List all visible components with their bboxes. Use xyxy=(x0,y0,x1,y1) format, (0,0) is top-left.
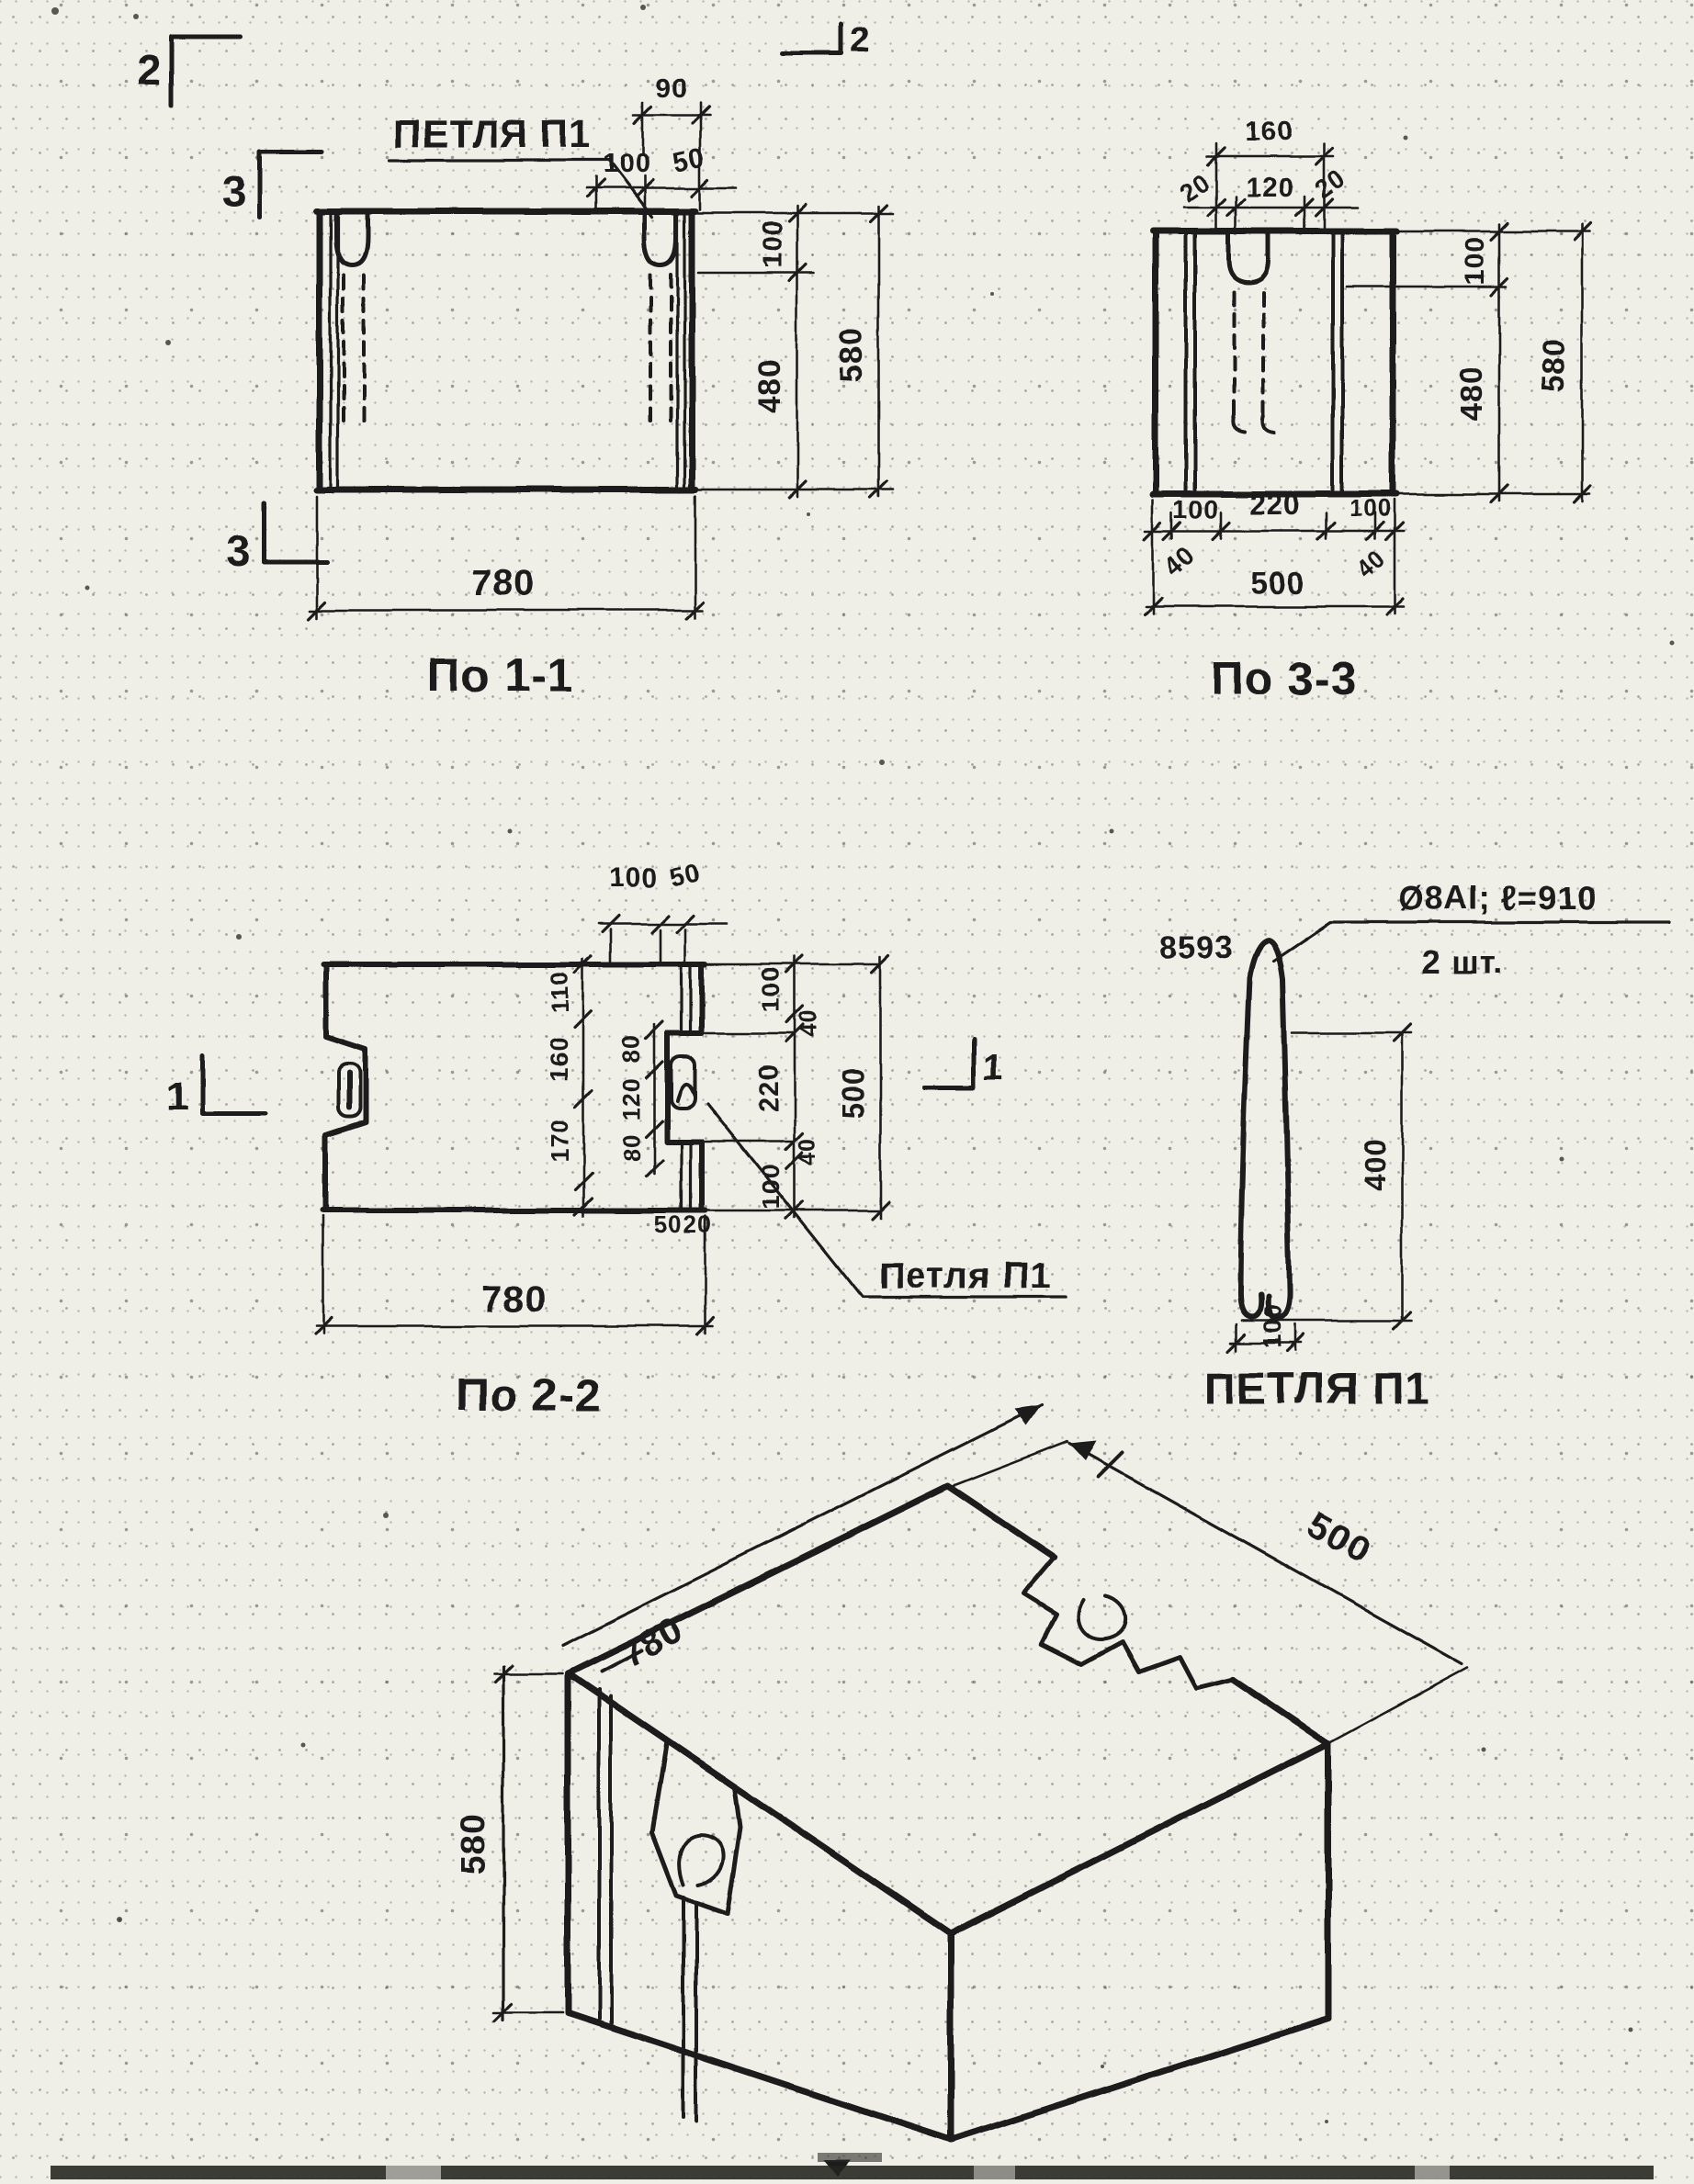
loop-qty-text: 2 шт. xyxy=(1421,943,1504,981)
cut-marker-3-top: 3 xyxy=(221,152,322,217)
section-1-1-outline xyxy=(317,211,695,490)
cut-marker-1-right: 1 xyxy=(923,1040,1004,1088)
dim-120: 120 xyxy=(1245,173,1293,203)
loop-label-2-2: Петля П1 xyxy=(878,1255,1051,1296)
section-1-1-view: 2 2 3 3 ПЕТЛЯ П1 xyxy=(137,21,893,701)
dim-loop-100: 100 xyxy=(1259,1304,1286,1348)
section-1-1-right-dims: 100 480 580 xyxy=(698,205,893,498)
section-1-1-bottom-dim: 780 xyxy=(309,496,704,618)
loop-spec-text: Ø8АI; ℓ=910 xyxy=(1398,879,1597,917)
dim-160: 160 xyxy=(546,1037,573,1081)
dim-bot-100r: 100 xyxy=(1350,494,1392,522)
cut-marker-3-bottom-label: 3 xyxy=(227,527,252,575)
iso-dim-580: 580 xyxy=(454,1665,562,2021)
iso-dim-500: 500 xyxy=(954,1441,1468,1743)
dim-top-100: 100 xyxy=(609,863,658,894)
dim-top-50: 50 xyxy=(668,858,704,892)
section-3-3-outline xyxy=(1153,231,1396,494)
iso-500: 500 xyxy=(1302,1504,1377,1570)
cut-marker-1-left-label: 1 xyxy=(166,1074,189,1119)
section-2-2-caption: По 2-2 xyxy=(456,1369,602,1421)
cut-marker-1-left: 1 xyxy=(166,1056,265,1119)
dim-170: 170 xyxy=(546,1119,573,1163)
dim-right-480: 480 xyxy=(1454,366,1489,421)
cut-marker-2-right-label: 2 xyxy=(851,21,871,60)
loop-detail-view: 8593 Ø8АI; ℓ=910 2 шт. 400 100 ПЕТЛЯ П1 xyxy=(1159,879,1668,1413)
dim-780-plan: 780 xyxy=(482,1279,547,1320)
section-1-1-caption: По 1-1 xyxy=(428,649,574,701)
dim-small-50: 50 xyxy=(655,1210,683,1238)
loop-spec-note: Ø8АI; ℓ=910 2 шт. xyxy=(1273,879,1668,981)
section-2-2-top-dims: 100 50 xyxy=(599,858,726,963)
cut-marker-3-top-label: 3 xyxy=(221,167,246,215)
dim-chain-40b: 40 xyxy=(794,1138,821,1166)
loop-mark-label: 8593 xyxy=(1159,929,1233,964)
isometric-view: 780 500 580 xyxy=(454,1405,1468,2177)
dim-50: 50 xyxy=(670,142,707,179)
dim-110: 110 xyxy=(546,971,573,1014)
dim-chain-220: 220 xyxy=(753,1063,784,1111)
scan-specks xyxy=(51,5,1675,2123)
dim-20r: 20 xyxy=(1310,163,1351,204)
cut-marker-2-left: 2 xyxy=(137,37,241,105)
section-1-1-top-dims: 90 100 50 xyxy=(586,73,737,209)
dim-right-580: 580 xyxy=(1537,338,1572,393)
section-1-1-loop-curves xyxy=(336,211,676,421)
scanned-drawing-sheet: 2 2 3 3 ПЕТЛЯ П1 xyxy=(0,0,1694,2184)
section-3-3-right-dims: 100 480 580 xyxy=(1347,223,1590,502)
dim-small-20: 20 xyxy=(684,1210,713,1238)
loop-recess-slot xyxy=(671,1056,695,1108)
section-2-2-right-dims: 100 40 220 40 100 500 xyxy=(706,956,888,1219)
dim-bot-100l: 100 xyxy=(1173,495,1219,523)
loop-detail-caption: ПЕТЛЯ П1 xyxy=(1204,1365,1429,1413)
section-3-3-view: 160 20 120 20 100 480 580 100 xyxy=(1145,116,1590,704)
dim-80-bottom: 80 xyxy=(617,1134,645,1163)
dim-right-100: 100 xyxy=(758,220,788,268)
section-3-3-bottom-dims: 100 220 100 40 40 500 xyxy=(1145,488,1404,614)
loop-detail-dims: 400 100 xyxy=(1228,1024,1411,1351)
dim-90: 90 xyxy=(655,73,687,104)
drawing-canvas: 2 2 3 3 ПЕТЛЯ П1 xyxy=(0,0,1694,2184)
cut-marker-2-right: 2 xyxy=(783,21,871,60)
dim-bot-220: 220 xyxy=(1249,488,1301,521)
dim-80-top: 80 xyxy=(617,1035,645,1064)
section-2-2-internal-dims: 110 160 170 80 120 80 50 20 xyxy=(546,956,712,1238)
cut-marker-2-left-label: 2 xyxy=(137,46,162,94)
section-2-2-view: 1 1 100 50 110 160 xyxy=(166,858,1066,1421)
bottom-scan-band xyxy=(51,2153,1654,2179)
dim-chain-40t: 40 xyxy=(794,1009,821,1038)
section-3-3-caption: По 3-3 xyxy=(1212,653,1358,704)
iso-groove-lines xyxy=(588,1643,641,2028)
section-3-3-top-dims: 160 20 120 20 xyxy=(1174,116,1358,230)
dim-bot-500: 500 xyxy=(1249,566,1304,601)
iso-580: 580 xyxy=(454,1814,492,1874)
dim-780: 780 xyxy=(471,563,536,603)
dim-right-100: 100 xyxy=(1460,236,1490,285)
dim-160: 160 xyxy=(1245,116,1293,146)
loop-label: ПЕТЛЯ П1 xyxy=(393,112,592,155)
dim-20l: 20 xyxy=(1174,167,1215,208)
dim-chain-100t: 100 xyxy=(756,966,785,1012)
dim-right-580: 580 xyxy=(834,327,869,382)
dim-400: 400 xyxy=(1358,1139,1391,1190)
dim-right-480: 480 xyxy=(752,358,787,413)
dim-bot-40r: 40 xyxy=(1351,544,1391,583)
cut-marker-3-bottom: 3 xyxy=(227,503,327,575)
section-3-3-loop xyxy=(1228,233,1273,433)
loop-wire xyxy=(1240,940,1290,1319)
dim-bot-40l: 40 xyxy=(1158,540,1200,581)
dim-right-500: 500 xyxy=(837,1067,870,1119)
iso-top-notch xyxy=(1023,1558,1233,1688)
cut-marker-1-right-label: 1 xyxy=(983,1048,1004,1088)
iso-dim-780: 780 xyxy=(562,1405,1042,1675)
dim-120-mid: 120 xyxy=(617,1078,645,1120)
